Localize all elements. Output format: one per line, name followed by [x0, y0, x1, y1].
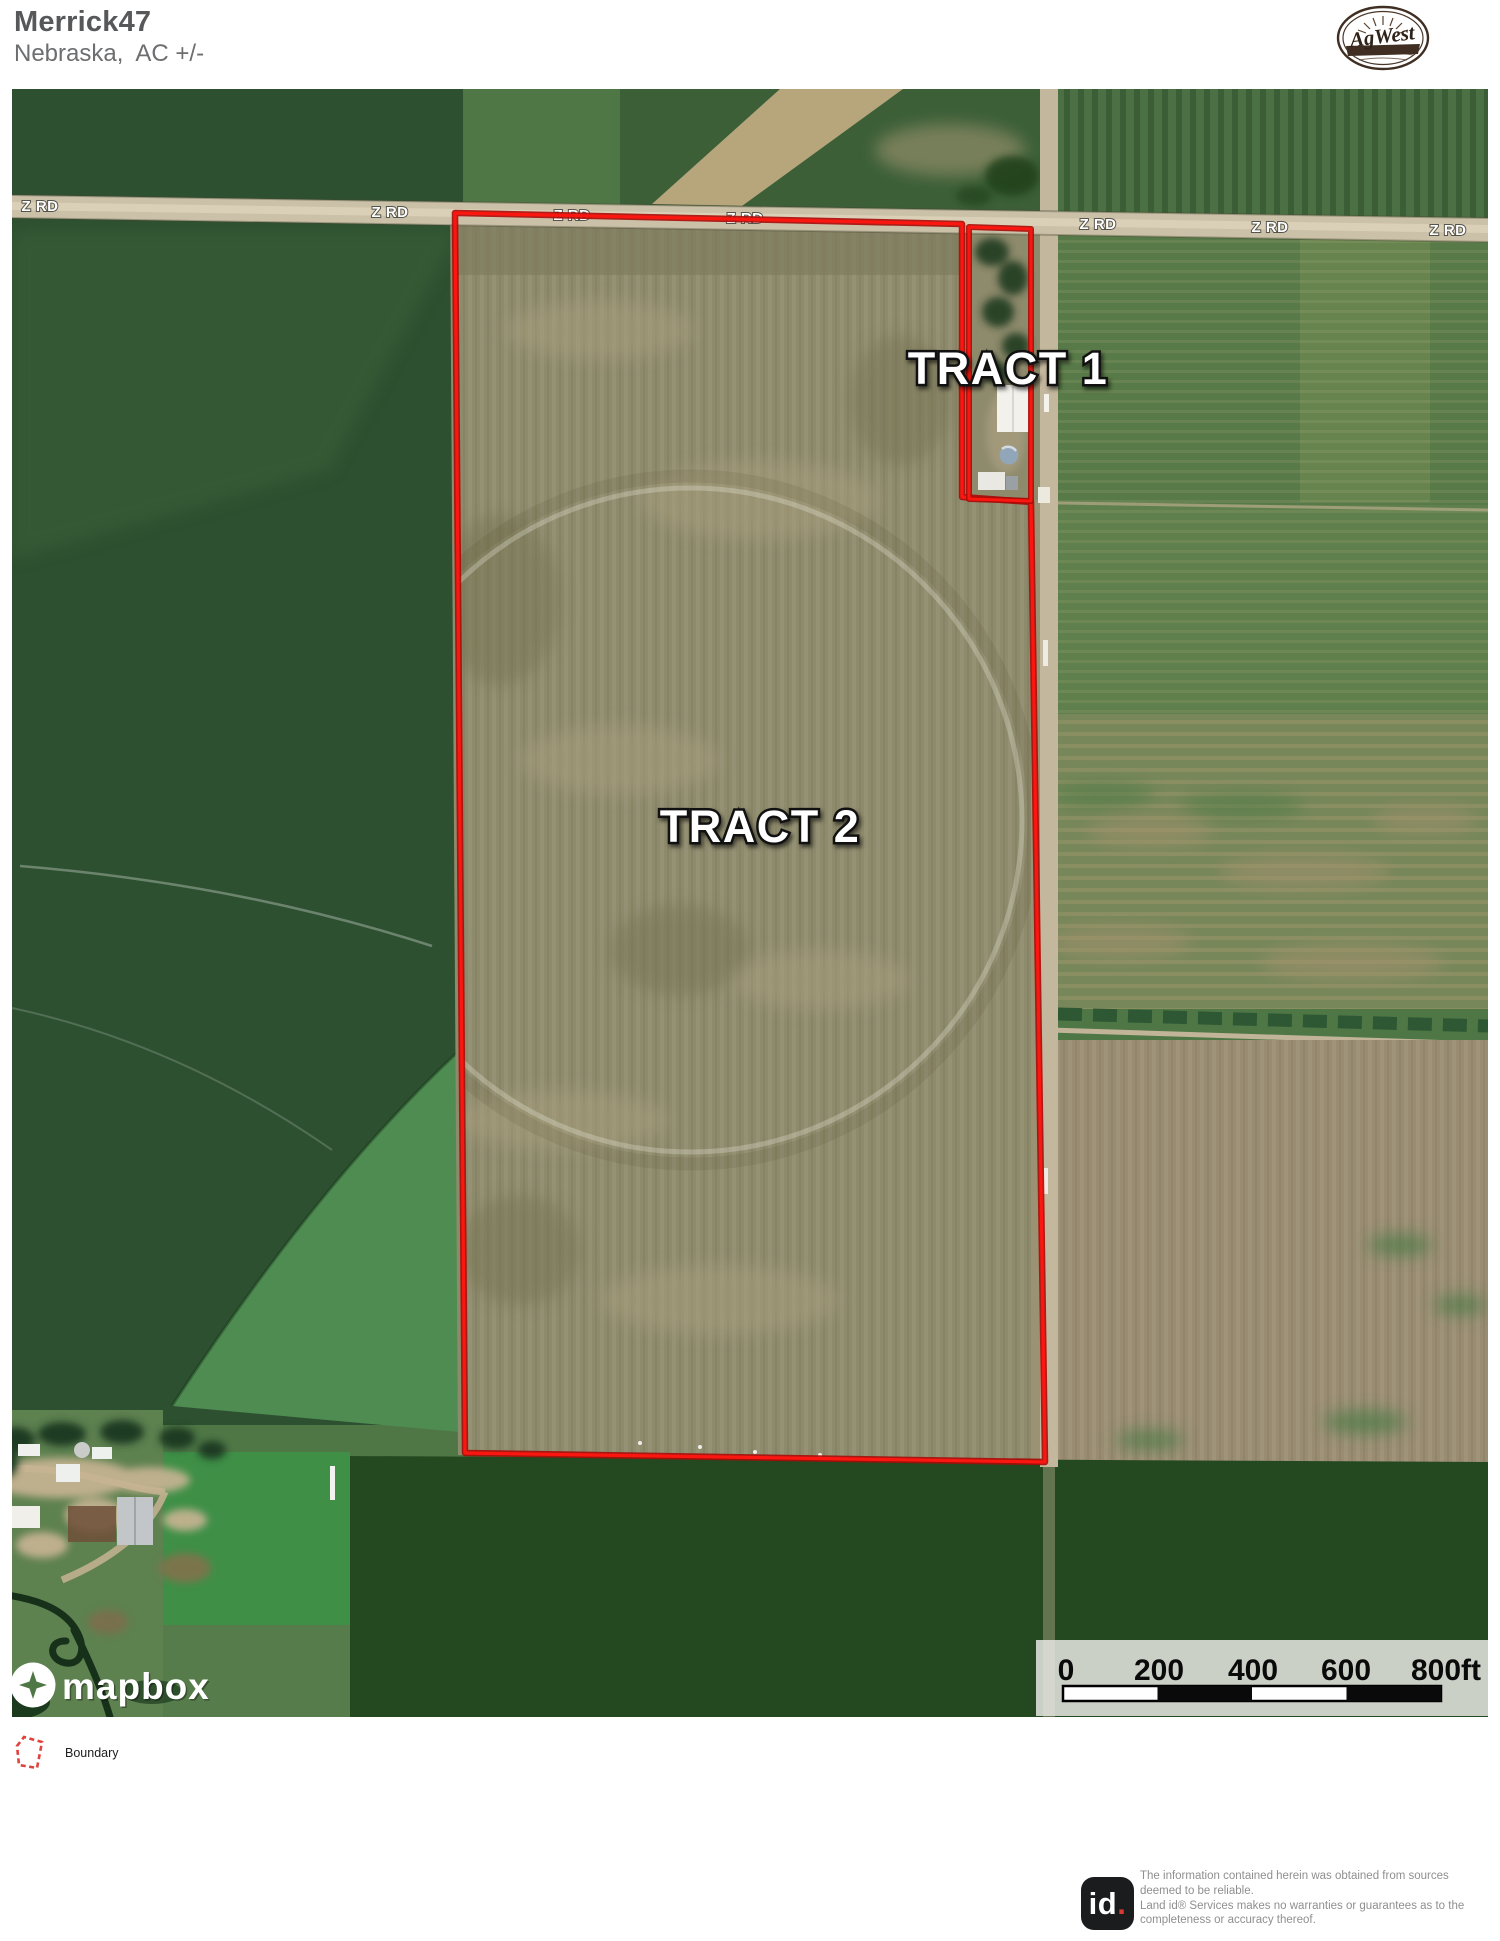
roadside-building — [1038, 487, 1050, 503]
satellite-fields — [0, 89, 1488, 1720]
scale-tick: 0 — [1058, 1654, 1075, 1687]
farm-building — [10, 1506, 40, 1528]
road-label: Z RD — [1252, 219, 1289, 236]
farm-building — [56, 1464, 80, 1482]
farm-building — [92, 1447, 112, 1459]
road-label: Z RD — [22, 198, 59, 215]
tract-1-label: TRACT 1 — [908, 343, 1109, 394]
shed — [978, 472, 1005, 490]
landid-logo-dot: . — [1117, 1886, 1126, 1922]
road-label: Z RD — [1430, 222, 1467, 239]
disclaimer-text: The information contained herein was obt… — [1140, 1869, 1500, 1928]
disclaimer-line: completeness or accuracy thereof. — [1140, 1913, 1500, 1928]
disclaimer-line: Land id® Services makes no warranties or… — [1140, 1899, 1500, 1914]
legend-boundary-icon — [12, 1734, 46, 1772]
legend-boundary-label: Boundary — [65, 1746, 119, 1760]
tract-2-label: TRACT 2 — [660, 801, 861, 852]
mapbox-wordmark: mapbox — [62, 1666, 210, 1707]
satellite-map: Z RD Z RD Z RD Z RD Z RD Z RD Z RD — [0, 0, 1500, 1941]
road-label: Z RD — [1080, 216, 1117, 233]
scale-tick: 800ft — [1411, 1654, 1481, 1687]
road-label: Z RD — [372, 204, 409, 221]
scale-tick: 400 — [1228, 1654, 1278, 1687]
disclaimer-line: deemed to be reliable. — [1140, 1884, 1500, 1899]
scale-tick: 600 — [1321, 1654, 1371, 1687]
grain-bin — [74, 1442, 90, 1458]
mapbox-logo[interactable]: mapbox mapbox — [11, 1663, 212, 1709]
boundary-legend: Boundary — [12, 1733, 119, 1773]
dirt-lot — [68, 1506, 116, 1542]
scale-bar: 0 200 400 600 800ft — [1036, 1640, 1494, 1716]
farm-building — [18, 1444, 40, 1456]
disclaimer-line: The information contained herein was obt… — [1140, 1869, 1500, 1884]
shed — [1006, 476, 1018, 490]
landid-logo: id. — [1081, 1877, 1134, 1930]
landid-logo-text: id — [1089, 1886, 1118, 1922]
scale-tick: 200 — [1134, 1654, 1184, 1687]
